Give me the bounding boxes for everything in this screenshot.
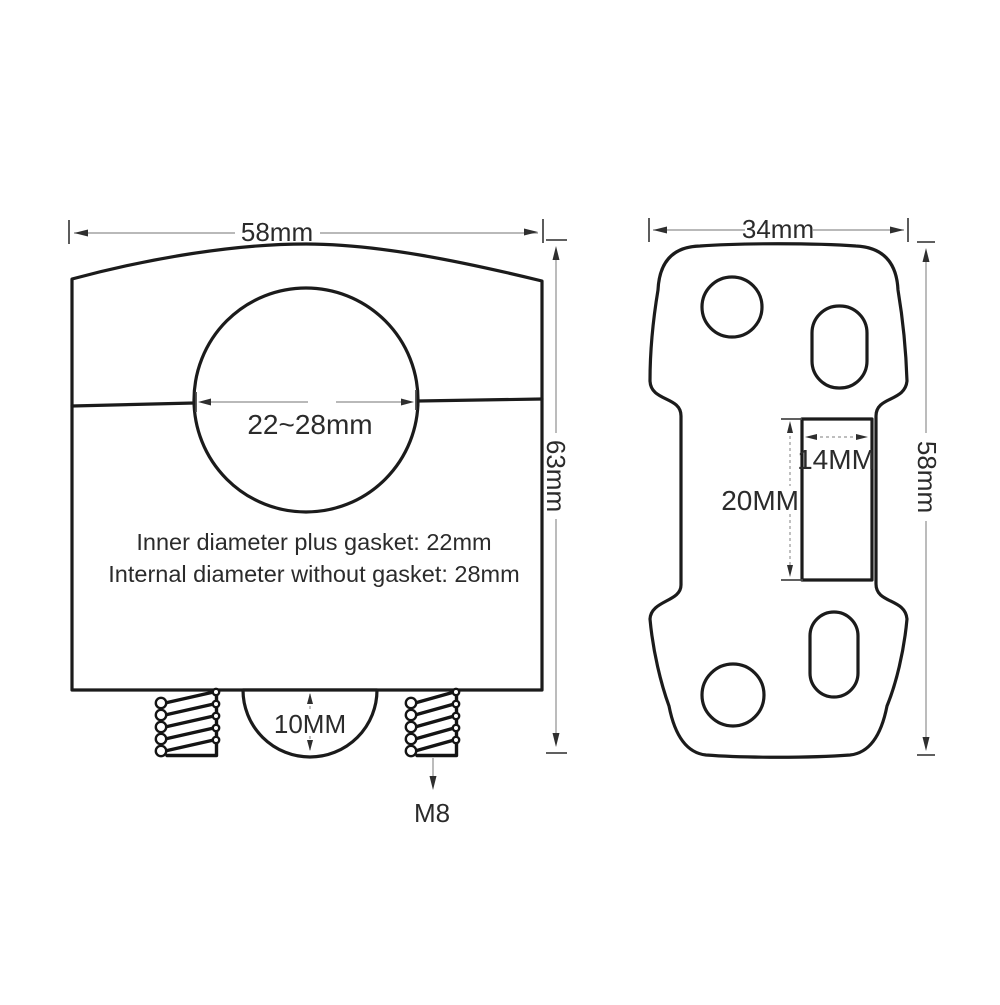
bolt-thread-callout: M8 (414, 758, 450, 828)
front-width-dimension-label: 58mm (241, 217, 313, 247)
slot-width-dimension-label: 14MM (797, 444, 875, 475)
front-height-dimension: 63mm (541, 240, 571, 753)
right-threaded-stud (406, 689, 459, 756)
note-internal-diameter: Internal diameter without gasket: 28mm (108, 561, 519, 587)
side-height-dimension: 58mm (912, 242, 942, 755)
front-width-arrow-left (74, 230, 88, 237)
boss-dimension-label: 10MM (274, 709, 346, 739)
side-width-arrow-right (890, 227, 904, 234)
note-inner-diameter-gasket: Inner diameter plus gasket: 22mm (136, 529, 491, 555)
front-height-dimension-label: 63mm (541, 440, 571, 512)
bolt-thread-label: M8 (414, 798, 450, 828)
front-width-dimension: 58mm (69, 217, 543, 247)
side-height-dimension-label: 58mm (912, 441, 942, 513)
front-width-arrow-right (524, 229, 538, 236)
clamp-body-outline (72, 244, 542, 690)
clamp-split-line-right (418, 399, 542, 401)
front-height-arrow-down (553, 733, 560, 747)
side-width-dimension: 34mm (649, 214, 908, 244)
front-height-arrow-up (553, 246, 560, 260)
front-view-drawing: 22~28mm 58mm 63mm Inner diame (69, 217, 571, 828)
side-height-arrow-down (923, 737, 930, 751)
side-view-drawing: 34mm 58mm 14MM (649, 214, 942, 757)
side-height-arrow-up (923, 248, 930, 262)
technical-drawing-page: 22~28mm 58mm 63mm Inner diame (0, 0, 1000, 1000)
bore-dimension-label: 22~28mm (247, 409, 372, 440)
handlebar-riser-clamp-diagram: 22~28mm 58mm 63mm Inner diame (0, 0, 1000, 1000)
side-width-dimension-label: 34mm (742, 214, 814, 244)
left-threaded-stud (156, 689, 219, 756)
slot-length-dimension-label: 20MM (721, 485, 799, 516)
bolt-callout-arrow (430, 776, 437, 790)
side-width-arrow-left (653, 227, 667, 234)
